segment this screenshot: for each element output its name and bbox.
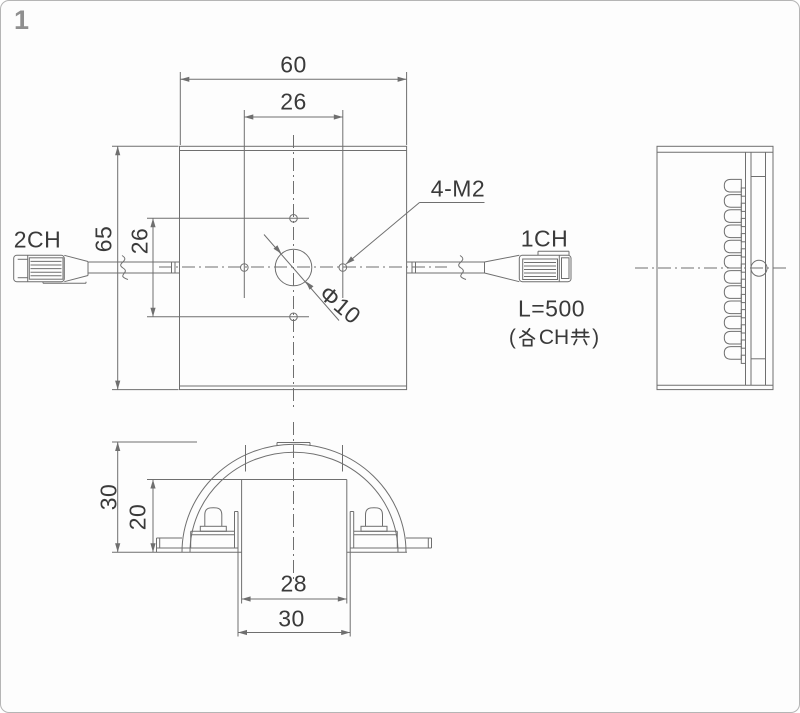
bottom-view: [112, 422, 432, 637]
note-close-paren: ): [592, 326, 599, 350]
drawing-canvas: [1, 1, 800, 713]
dim-label-inner-width-28: 28: [281, 570, 308, 597]
dim-label-hole-pitch-h-26: 26: [280, 88, 307, 115]
cable-right-1ch: [407, 251, 571, 281]
dim-30-height: [112, 442, 197, 552]
kanji-each-icon: [517, 327, 538, 348]
dim-label-hole-pitch-v-26: 26: [126, 228, 153, 255]
dim-65: [112, 146, 179, 389]
led-row: [724, 179, 745, 363]
cable-break-right: [459, 256, 466, 280]
led-left: [200, 508, 226, 532]
dim-label-inner-height-20: 20: [125, 504, 152, 531]
centerlines: [159, 135, 447, 410]
dim-label-outer-width-30: 30: [278, 605, 305, 632]
cable-channel-note: ( CH ): [509, 326, 599, 350]
cable-break-left: [121, 256, 128, 280]
note-ch-text: CH: [539, 326, 569, 350]
led-right: [361, 508, 387, 532]
cable-left-2ch: [14, 255, 180, 283]
cable-label-2ch: 2CH: [14, 226, 62, 253]
dim-28: [242, 596, 347, 601]
side-view: [635, 146, 790, 389]
callout-4-m2: 4-M2: [431, 175, 485, 202]
drawing-sheet: 1: [0, 0, 800, 713]
dim-label-height-65: 65: [91, 225, 118, 252]
cable-label-1ch: 1CH: [521, 225, 569, 252]
note-open-paren: (: [509, 326, 516, 350]
m2-leader: [346, 203, 485, 265]
dim-label-width-60: 60: [280, 51, 307, 78]
dim-label-dome-height-30: 30: [95, 484, 122, 511]
cable-length-label: L=500: [518, 295, 585, 322]
kanji-common-icon: [570, 327, 591, 348]
front-view: [112, 72, 485, 410]
